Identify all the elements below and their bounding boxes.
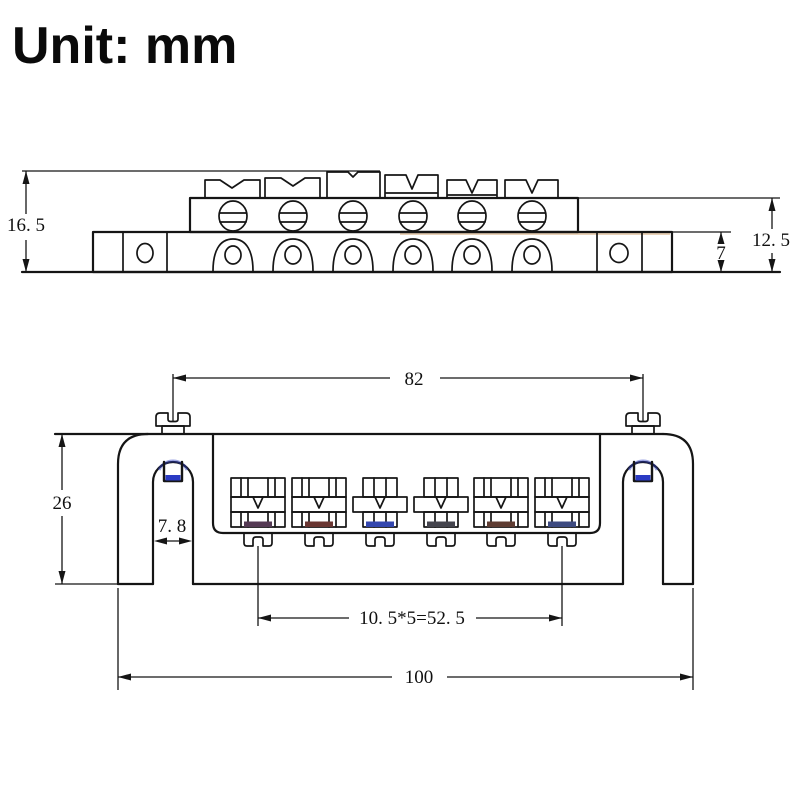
dim-label-82: 82: [405, 369, 424, 390]
saddle-base-bar: [548, 522, 576, 528]
dim-label-7: 7: [716, 243, 726, 264]
base-hole: [137, 244, 153, 263]
body-right-shoulder: [663, 434, 693, 584]
technical-drawing-page: Unit: mm: [0, 0, 800, 800]
base-hole: [610, 244, 628, 263]
saddle-base-bar: [366, 522, 394, 528]
dim-label-52-5: 10. 5*5=52. 5: [359, 608, 465, 629]
diagram-canvas: Unit: mm: [0, 0, 800, 800]
saddle: [205, 180, 260, 198]
saddle-base-bar: [305, 522, 333, 528]
saddle-base-bar: [244, 522, 272, 528]
saddle-assembly-row: [231, 478, 589, 527]
saddle-row: [205, 172, 558, 198]
front-view: 82 26 7. 8 10. 5*5=52. 5: [53, 369, 694, 690]
saddle: [505, 180, 558, 198]
page-title: Unit: mm: [12, 17, 237, 75]
dim-label-100: 100: [405, 667, 434, 688]
body-left-shoulder: [118, 434, 148, 584]
dim-upper-height: 12. 5: [752, 198, 790, 272]
dim-overall-width: 100: [118, 588, 693, 690]
saddle-base-bar: [487, 522, 515, 528]
dim-total-height: 16. 5: [7, 171, 45, 272]
dim-overall-height: 26: [53, 434, 119, 584]
dim-label-12-5: 12. 5: [752, 230, 790, 251]
post-hole-blue-bar: [636, 475, 651, 481]
dim-leg-slot-width: 7. 8: [154, 516, 192, 545]
side-view: 16. 5 12. 5 7: [7, 171, 790, 272]
saddle: [327, 172, 380, 198]
dim-base-thickness: 7: [716, 232, 726, 272]
saddle: [265, 178, 320, 198]
dim-post-spacing: 82: [173, 369, 643, 421]
ear-row: [213, 239, 552, 271]
base-plate: [93, 232, 672, 272]
right-post-hole: [629, 461, 657, 481]
dim-label-16-5: 16. 5: [7, 215, 45, 236]
saddle-cavity: [213, 434, 600, 533]
screw-row: [219, 201, 546, 231]
post-hole-blue-bar: [166, 475, 181, 481]
saddle: [447, 180, 497, 198]
left-post-hole: [159, 461, 187, 481]
retainer-tab-row: [244, 533, 576, 546]
saddle: [385, 175, 438, 198]
dim-string-spacing: 10. 5*5=52. 5: [258, 546, 562, 629]
dim-label-7-8: 7. 8: [158, 516, 187, 537]
retainer-plate: [190, 198, 578, 232]
dim-label-26: 26: [53, 493, 72, 514]
saddle-base-bar: [427, 522, 455, 528]
